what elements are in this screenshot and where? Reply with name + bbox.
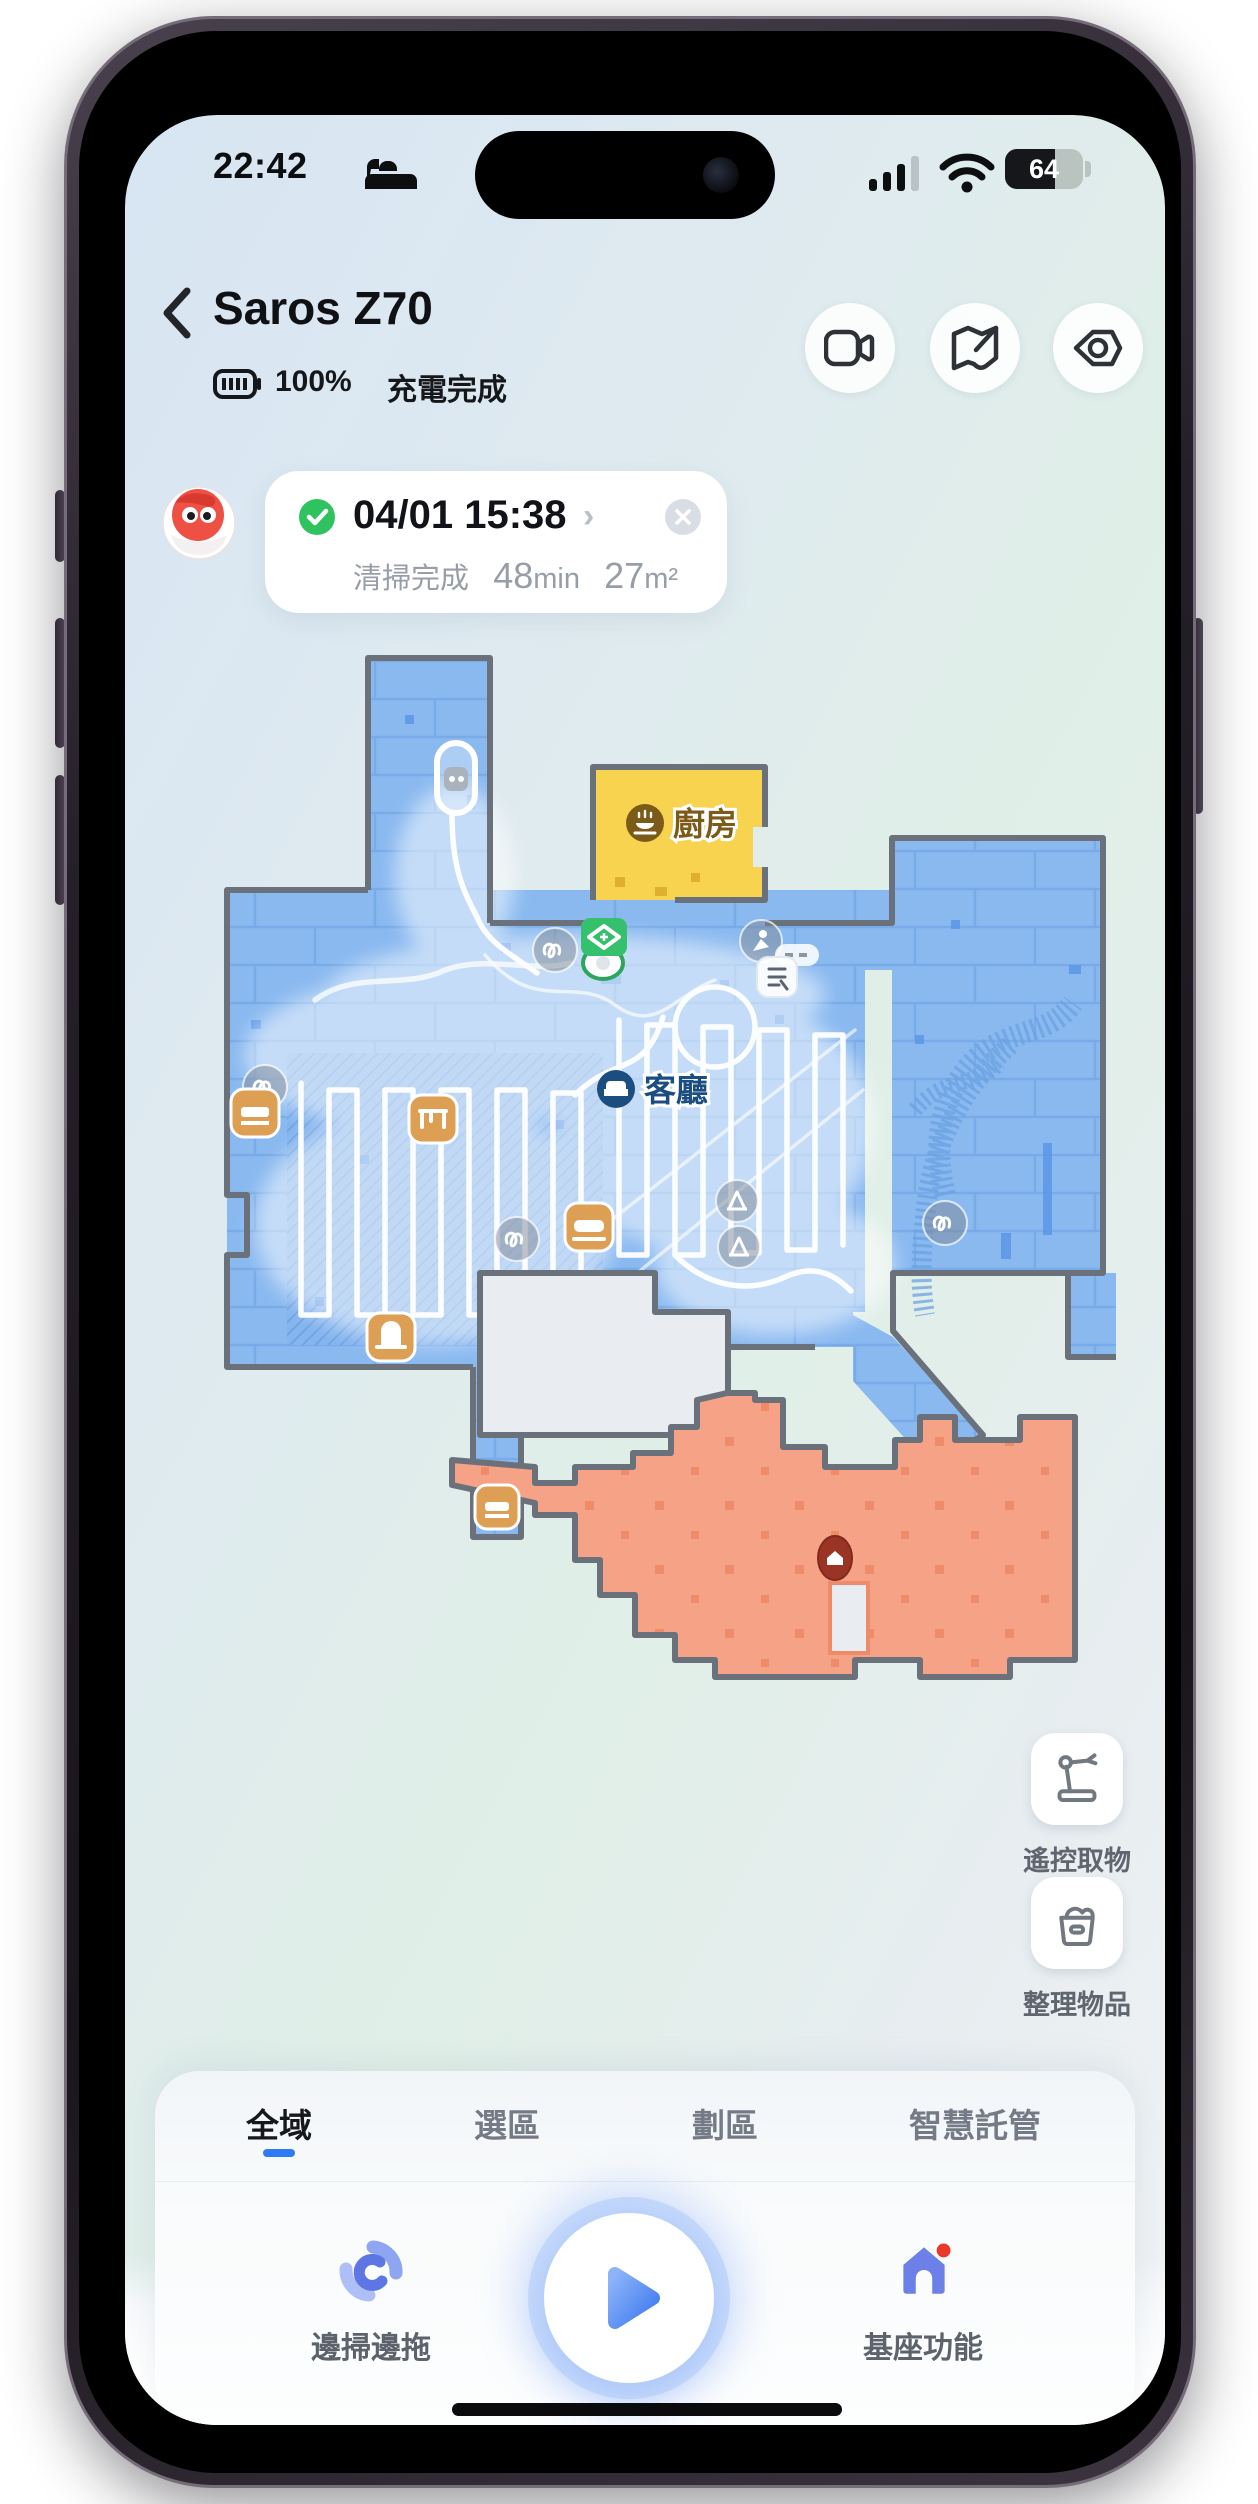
tab-select-zone[interactable]: 選區 bbox=[474, 2099, 540, 2147]
dock-marker[interactable] bbox=[581, 918, 627, 979]
sweep-mop-label: 邊掃邊拖 bbox=[311, 2323, 431, 2367]
dock-house-icon bbox=[891, 2237, 957, 2303]
storage-box-icon bbox=[1049, 1895, 1105, 1951]
tab-smart-mode[interactable]: 智慧託管 bbox=[909, 2099, 1041, 2147]
sweep-mop-swirl-icon bbox=[339, 2239, 403, 2303]
kitchen-label[interactable]: 廚房 bbox=[626, 804, 737, 842]
sweep-mop-button[interactable] bbox=[339, 2239, 403, 2303]
sheet-divider bbox=[155, 2181, 1135, 2182]
cleaned-halo bbox=[245, 785, 895, 1345]
remote-pickup-label: 遙控取物 bbox=[997, 1839, 1157, 1878]
phone-frame: 22:42 bbox=[64, 16, 1196, 2488]
home-position-marker[interactable] bbox=[818, 1536, 852, 1580]
svg-text:廚房: 廚房 bbox=[673, 806, 737, 842]
phone-bezel: 22:42 bbox=[79, 31, 1181, 2473]
dock-functions-button[interactable] bbox=[891, 2237, 957, 2303]
screenshot-root: 22:42 bbox=[0, 0, 1258, 2504]
app-screen: 22:42 bbox=[125, 115, 1165, 2425]
home-indicator[interactable] bbox=[452, 2403, 842, 2416]
dock-functions-label: 基座功能 bbox=[863, 2323, 983, 2367]
tab-global[interactable]: 全域 bbox=[246, 2099, 312, 2147]
tidy-items-label: 整理物品 bbox=[997, 1983, 1157, 2022]
living-room-label[interactable]: 客廳 bbox=[597, 1070, 708, 1108]
robotic-arm-icon bbox=[1049, 1751, 1105, 1807]
tab-draw-zone[interactable]: 劃區 bbox=[692, 2099, 758, 2147]
active-tab-underline bbox=[263, 2149, 295, 2157]
tidy-items-button[interactable] bbox=[1031, 1877, 1123, 1969]
play-icon bbox=[593, 2262, 665, 2334]
svg-text:客廳: 客廳 bbox=[644, 1072, 708, 1108]
obstacle-pill bbox=[437, 743, 475, 813]
start-cleaning-button[interactable] bbox=[544, 2213, 714, 2383]
remote-pickup-button[interactable] bbox=[1031, 1733, 1123, 1825]
